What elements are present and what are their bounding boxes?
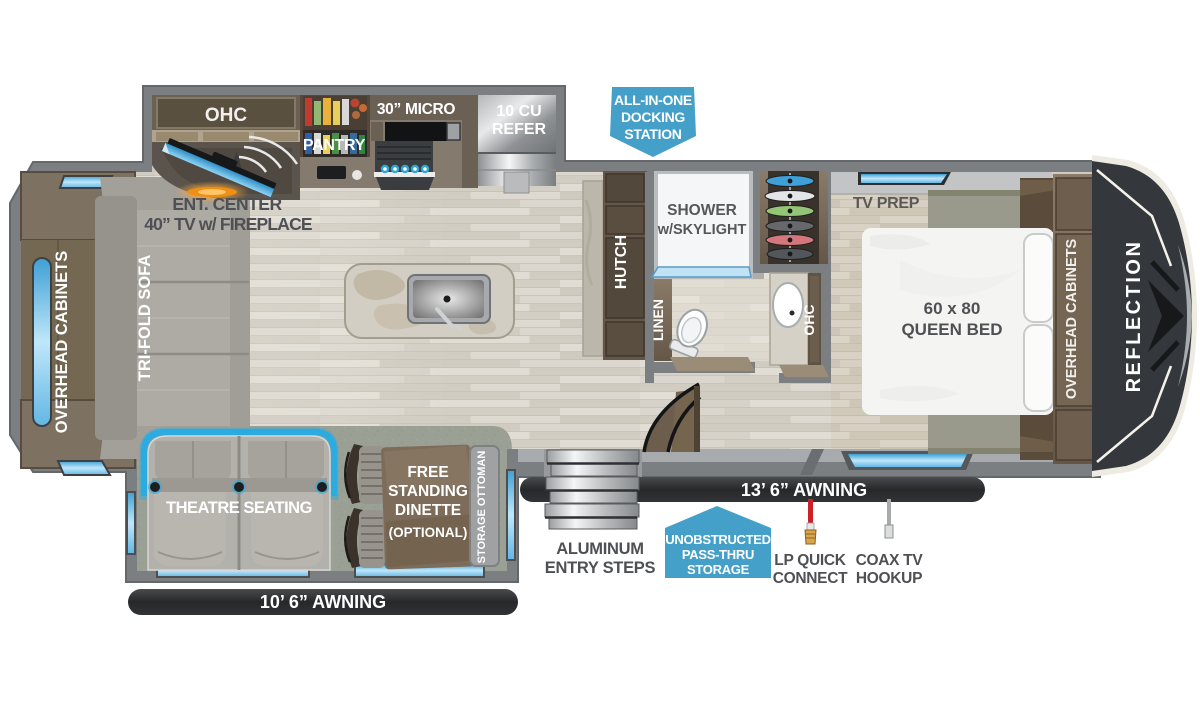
svg-text:LINEN: LINEN (650, 299, 666, 341)
svg-text:PANTRY: PANTRY (303, 137, 366, 154)
svg-text:w/SKYLIGHT: w/SKYLIGHT (657, 222, 747, 238)
svg-text:OHC: OHC (205, 105, 248, 126)
svg-text:STATION: STATION (624, 126, 681, 142)
svg-text:10’ 6” AWNING: 10’ 6” AWNING (260, 592, 386, 612)
svg-text:CONNECT: CONNECT (773, 570, 848, 587)
svg-text:13’ 6” AWNING: 13’ 6” AWNING (741, 480, 867, 500)
svg-text:OVERHEAD CABINETS: OVERHEAD CABINETS (53, 251, 71, 433)
svg-text:DINETTE: DINETTE (395, 502, 461, 519)
svg-text:10 CU: 10 CU (496, 103, 541, 120)
svg-text:THEATRE SEATING: THEATRE SEATING (166, 499, 312, 517)
svg-text:STANDING: STANDING (388, 483, 468, 500)
svg-text:ALL-IN-ONE: ALL-IN-ONE (614, 92, 692, 108)
svg-text:OHC: OHC (801, 304, 817, 335)
svg-text:FREE: FREE (407, 464, 448, 481)
svg-text:REFER: REFER (492, 121, 547, 138)
svg-text:HOOKUP: HOOKUP (856, 570, 922, 587)
svg-text:SHOWER: SHOWER (667, 202, 737, 219)
svg-text:PASS-THRU: PASS-THRU (682, 547, 754, 562)
svg-text:STORAGE OTTOMAN: STORAGE OTTOMAN (476, 451, 488, 564)
svg-text:40” TV w/ FIREPLACE: 40” TV w/ FIREPLACE (144, 214, 312, 234)
svg-text:(OPTIONAL): (OPTIONAL) (389, 525, 468, 540)
svg-text:30” MICRO: 30” MICRO (377, 101, 456, 118)
svg-text:STORAGE: STORAGE (687, 562, 750, 577)
svg-text:REFLECTION: REFLECTION (1123, 240, 1145, 393)
svg-text:60 x 80: 60 x 80 (924, 299, 981, 318)
svg-text:TRI-FOLD SOFA: TRI-FOLD SOFA (136, 255, 154, 382)
svg-text:OVERHEAD CABINETS: OVERHEAD CABINETS (1064, 239, 1080, 400)
svg-text:ENT. CENTER: ENT. CENTER (172, 194, 282, 214)
svg-text:COAX TV: COAX TV (856, 552, 924, 569)
svg-text:HUTCH: HUTCH (613, 235, 630, 289)
svg-text:UNOBSTRUCTED: UNOBSTRUCTED (665, 532, 770, 547)
svg-text:DOCKING: DOCKING (621, 109, 685, 125)
svg-text:ENTRY STEPS: ENTRY STEPS (545, 559, 656, 577)
svg-text:LP QUICK: LP QUICK (774, 552, 846, 569)
svg-text:QUEEN BED: QUEEN BED (901, 320, 1002, 339)
svg-text:ALUMINUM: ALUMINUM (556, 540, 643, 558)
